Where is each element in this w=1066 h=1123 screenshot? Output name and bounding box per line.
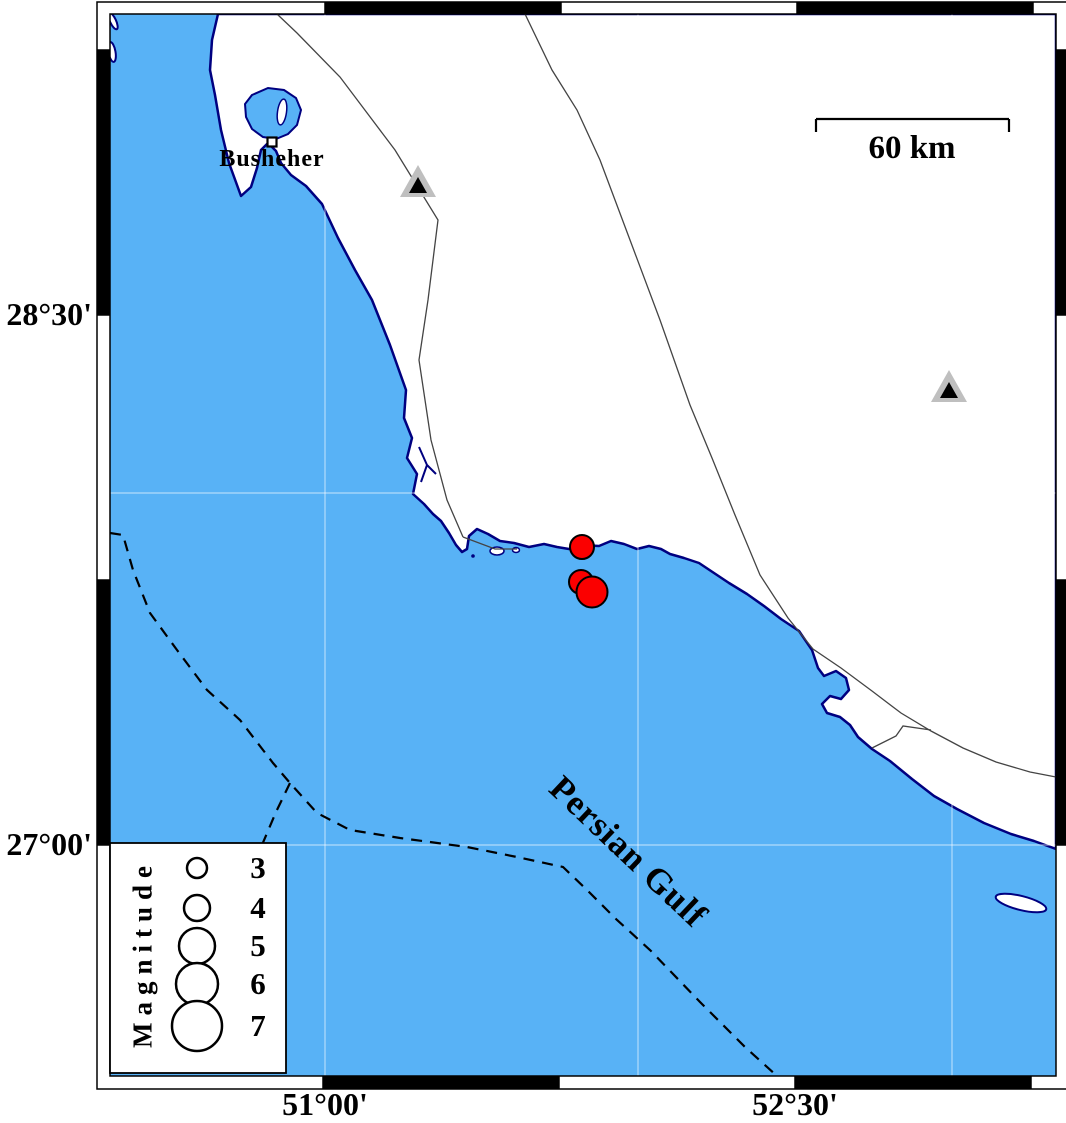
legend-magnitude-circle [179,928,215,964]
legend-value-7: 7 [238,1008,278,1044]
legend-value-5: 5 [238,928,278,964]
scale-bar-label: 60 km [832,130,992,167]
legend-magnitude-circle [172,1001,222,1051]
earthquake-marker [577,577,608,608]
lat-label-2700: 27°00' [0,826,92,863]
legend-value-3: 3 [238,850,278,886]
lon-label-5100: 51°00' [245,1086,405,1123]
legend-magnitude-circle [176,963,218,1005]
legend-title: Magnitude [128,844,159,1064]
lat-label-2830: 28°30' [0,296,92,333]
map-figure: 28°30' 27°00' 51°00' 52°30' Busheher 60 … [0,0,1066,1123]
legend-magnitude-circle [187,858,207,878]
legend-value-4: 4 [238,890,278,926]
lon-label-5230: 52°30' [715,1086,875,1123]
earthquake-marker [570,535,594,559]
legend-magnitude-circle [184,895,210,921]
city-name-label: Busheher [172,146,372,173]
legend-value-6: 6 [238,966,278,1002]
map-canvas [0,0,1066,1123]
